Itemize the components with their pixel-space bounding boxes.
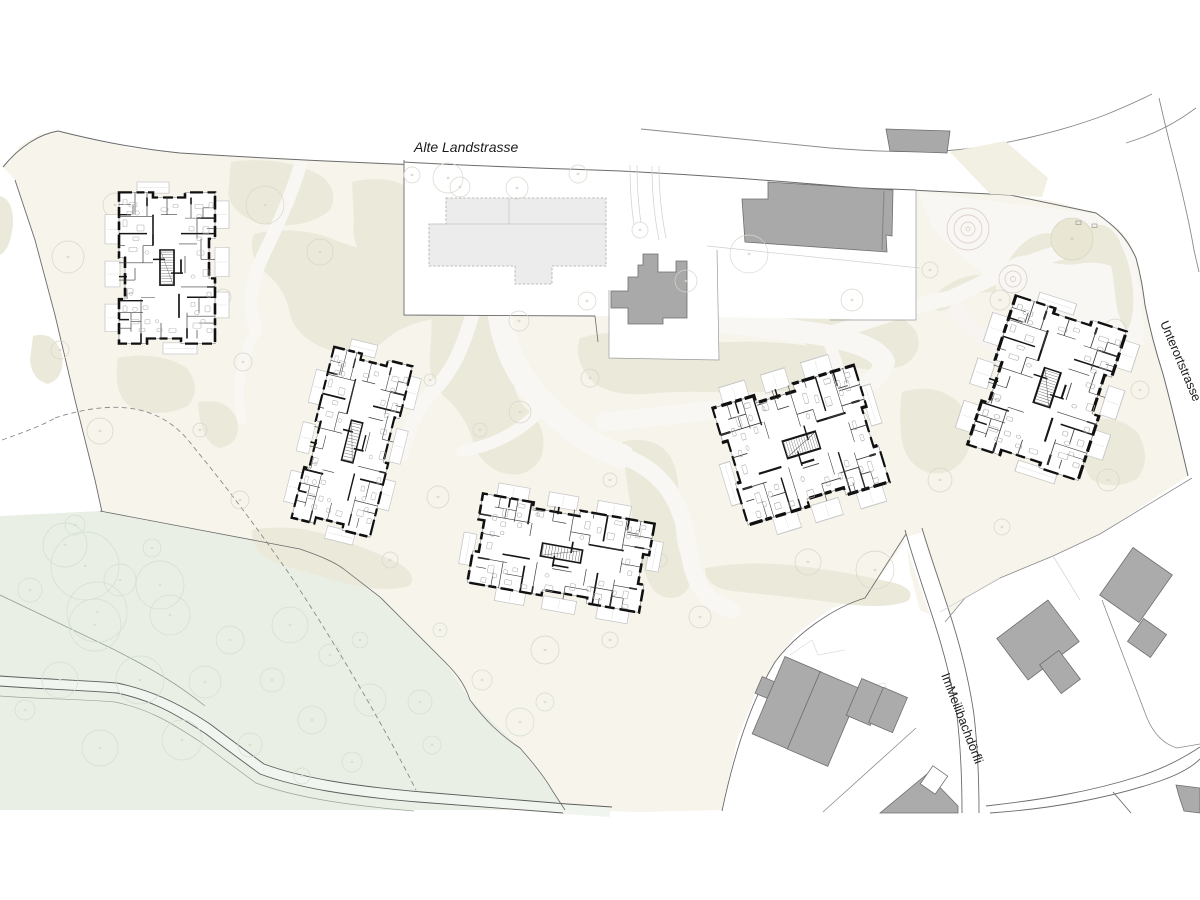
svg-text:Alte Landstrasse: Alte Landstrasse xyxy=(413,139,518,155)
